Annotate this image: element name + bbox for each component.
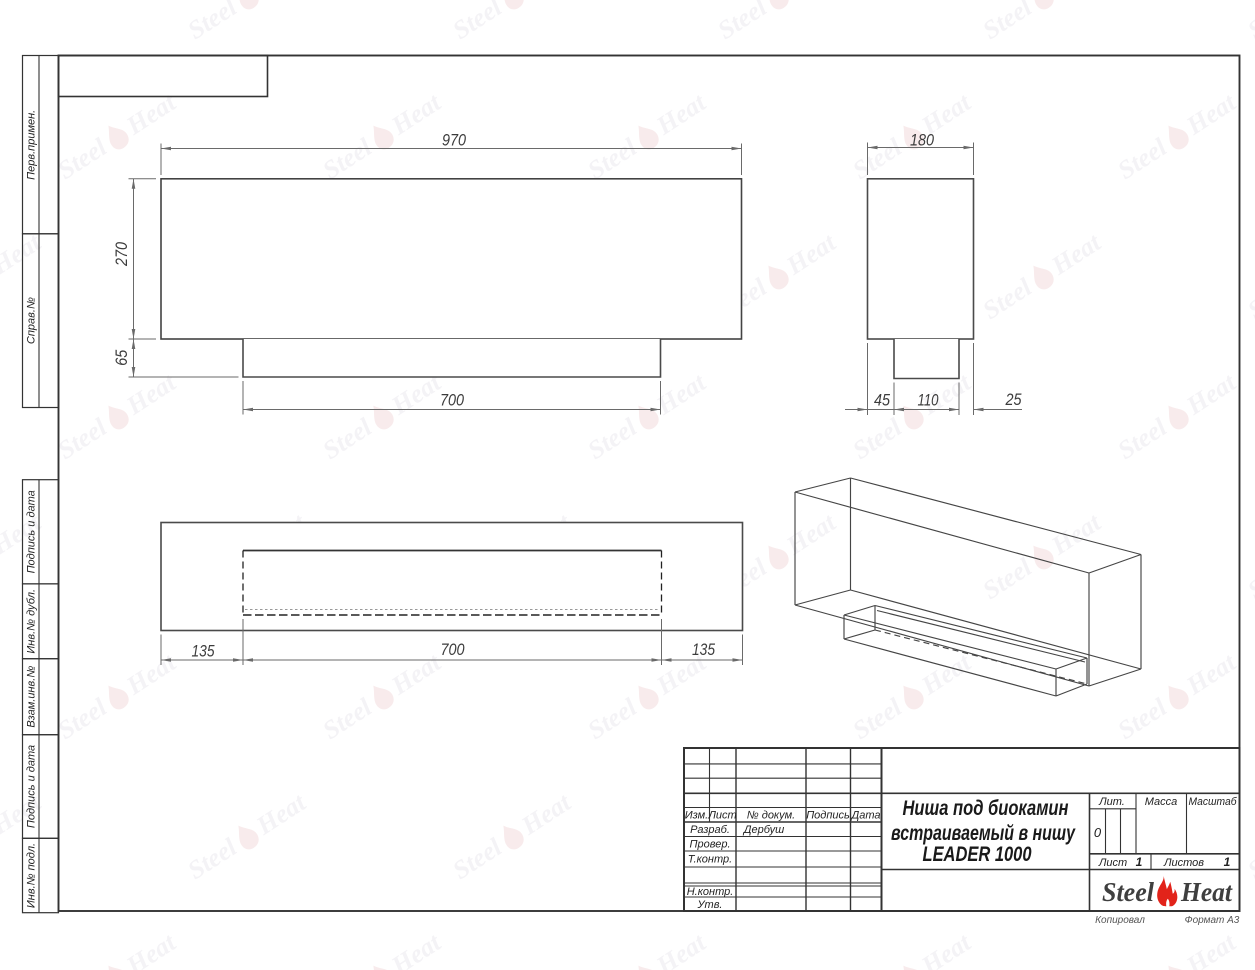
svg-text:№ докум.: № докум. [747,810,795,822]
svg-text:45: 45 [874,392,891,410]
svg-text:Лит.: Лит. [1098,796,1125,808]
svg-text:0: 0 [1094,825,1102,840]
svg-text:135: 135 [192,643,216,661]
svg-text:1: 1 [1136,855,1143,869]
svg-text:Формат А3: Формат А3 [1185,915,1240,926]
svg-text:Разраб.: Разраб. [690,824,730,836]
svg-text:Перв.примен.: Перв.примен. [26,110,38,180]
svg-text:700: 700 [440,392,465,410]
svg-text:Подпись и дата: Подпись и дата [26,745,38,828]
svg-text:Масса: Масса [1145,796,1178,808]
svg-text:Провер.: Провер. [690,839,731,851]
svg-text:270: 270 [113,241,131,267]
svg-text:Дербуш: Дербуш [742,824,785,836]
svg-text:Лист: Лист [707,810,736,822]
svg-text:Ниша под биокамин: Ниша под биокамин [903,797,1069,820]
svg-text:LEADER 1000: LEADER 1000 [923,843,1032,866]
svg-text:110: 110 [918,392,940,410]
svg-text:Steel: Steel [1102,877,1154,907]
svg-text:встраиваемый в нишу: встраиваемый в нишу [891,822,1076,845]
svg-text:Подпись: Подпись [806,810,850,822]
svg-text:1: 1 [1224,855,1231,869]
svg-text:25: 25 [1005,391,1023,409]
svg-text:Т.контр.: Т.контр. [688,854,732,866]
svg-text:700: 700 [441,641,466,659]
svg-text:Дата: Дата [849,810,880,822]
svg-text:Н.контр.: Н.контр. [687,886,734,898]
svg-text:Листов: Листов [1163,857,1204,869]
svg-text:180: 180 [910,132,935,150]
svg-text:Heat: Heat [1180,877,1233,907]
svg-text:Копировал: Копировал [1095,915,1145,926]
svg-text:Изм.: Изм. [685,810,708,822]
svg-text:Взам.инв.№: Взам.инв.№ [26,666,38,728]
svg-text:Инв.№ дубл.: Инв.№ дубл. [26,589,38,654]
svg-text:65: 65 [113,349,131,366]
svg-text:135: 135 [692,641,716,659]
svg-text:Лист: Лист [1098,857,1127,869]
svg-text:Масштаб: Масштаб [1189,796,1238,808]
svg-text:Справ.№: Справ.№ [26,297,38,344]
svg-text:Инв.№ подл.: Инв.№ подл. [26,843,38,908]
svg-text:970: 970 [442,132,467,150]
svg-text:Подпись и дата: Подпись и дата [26,490,38,573]
svg-text:Утв.: Утв. [697,899,723,911]
